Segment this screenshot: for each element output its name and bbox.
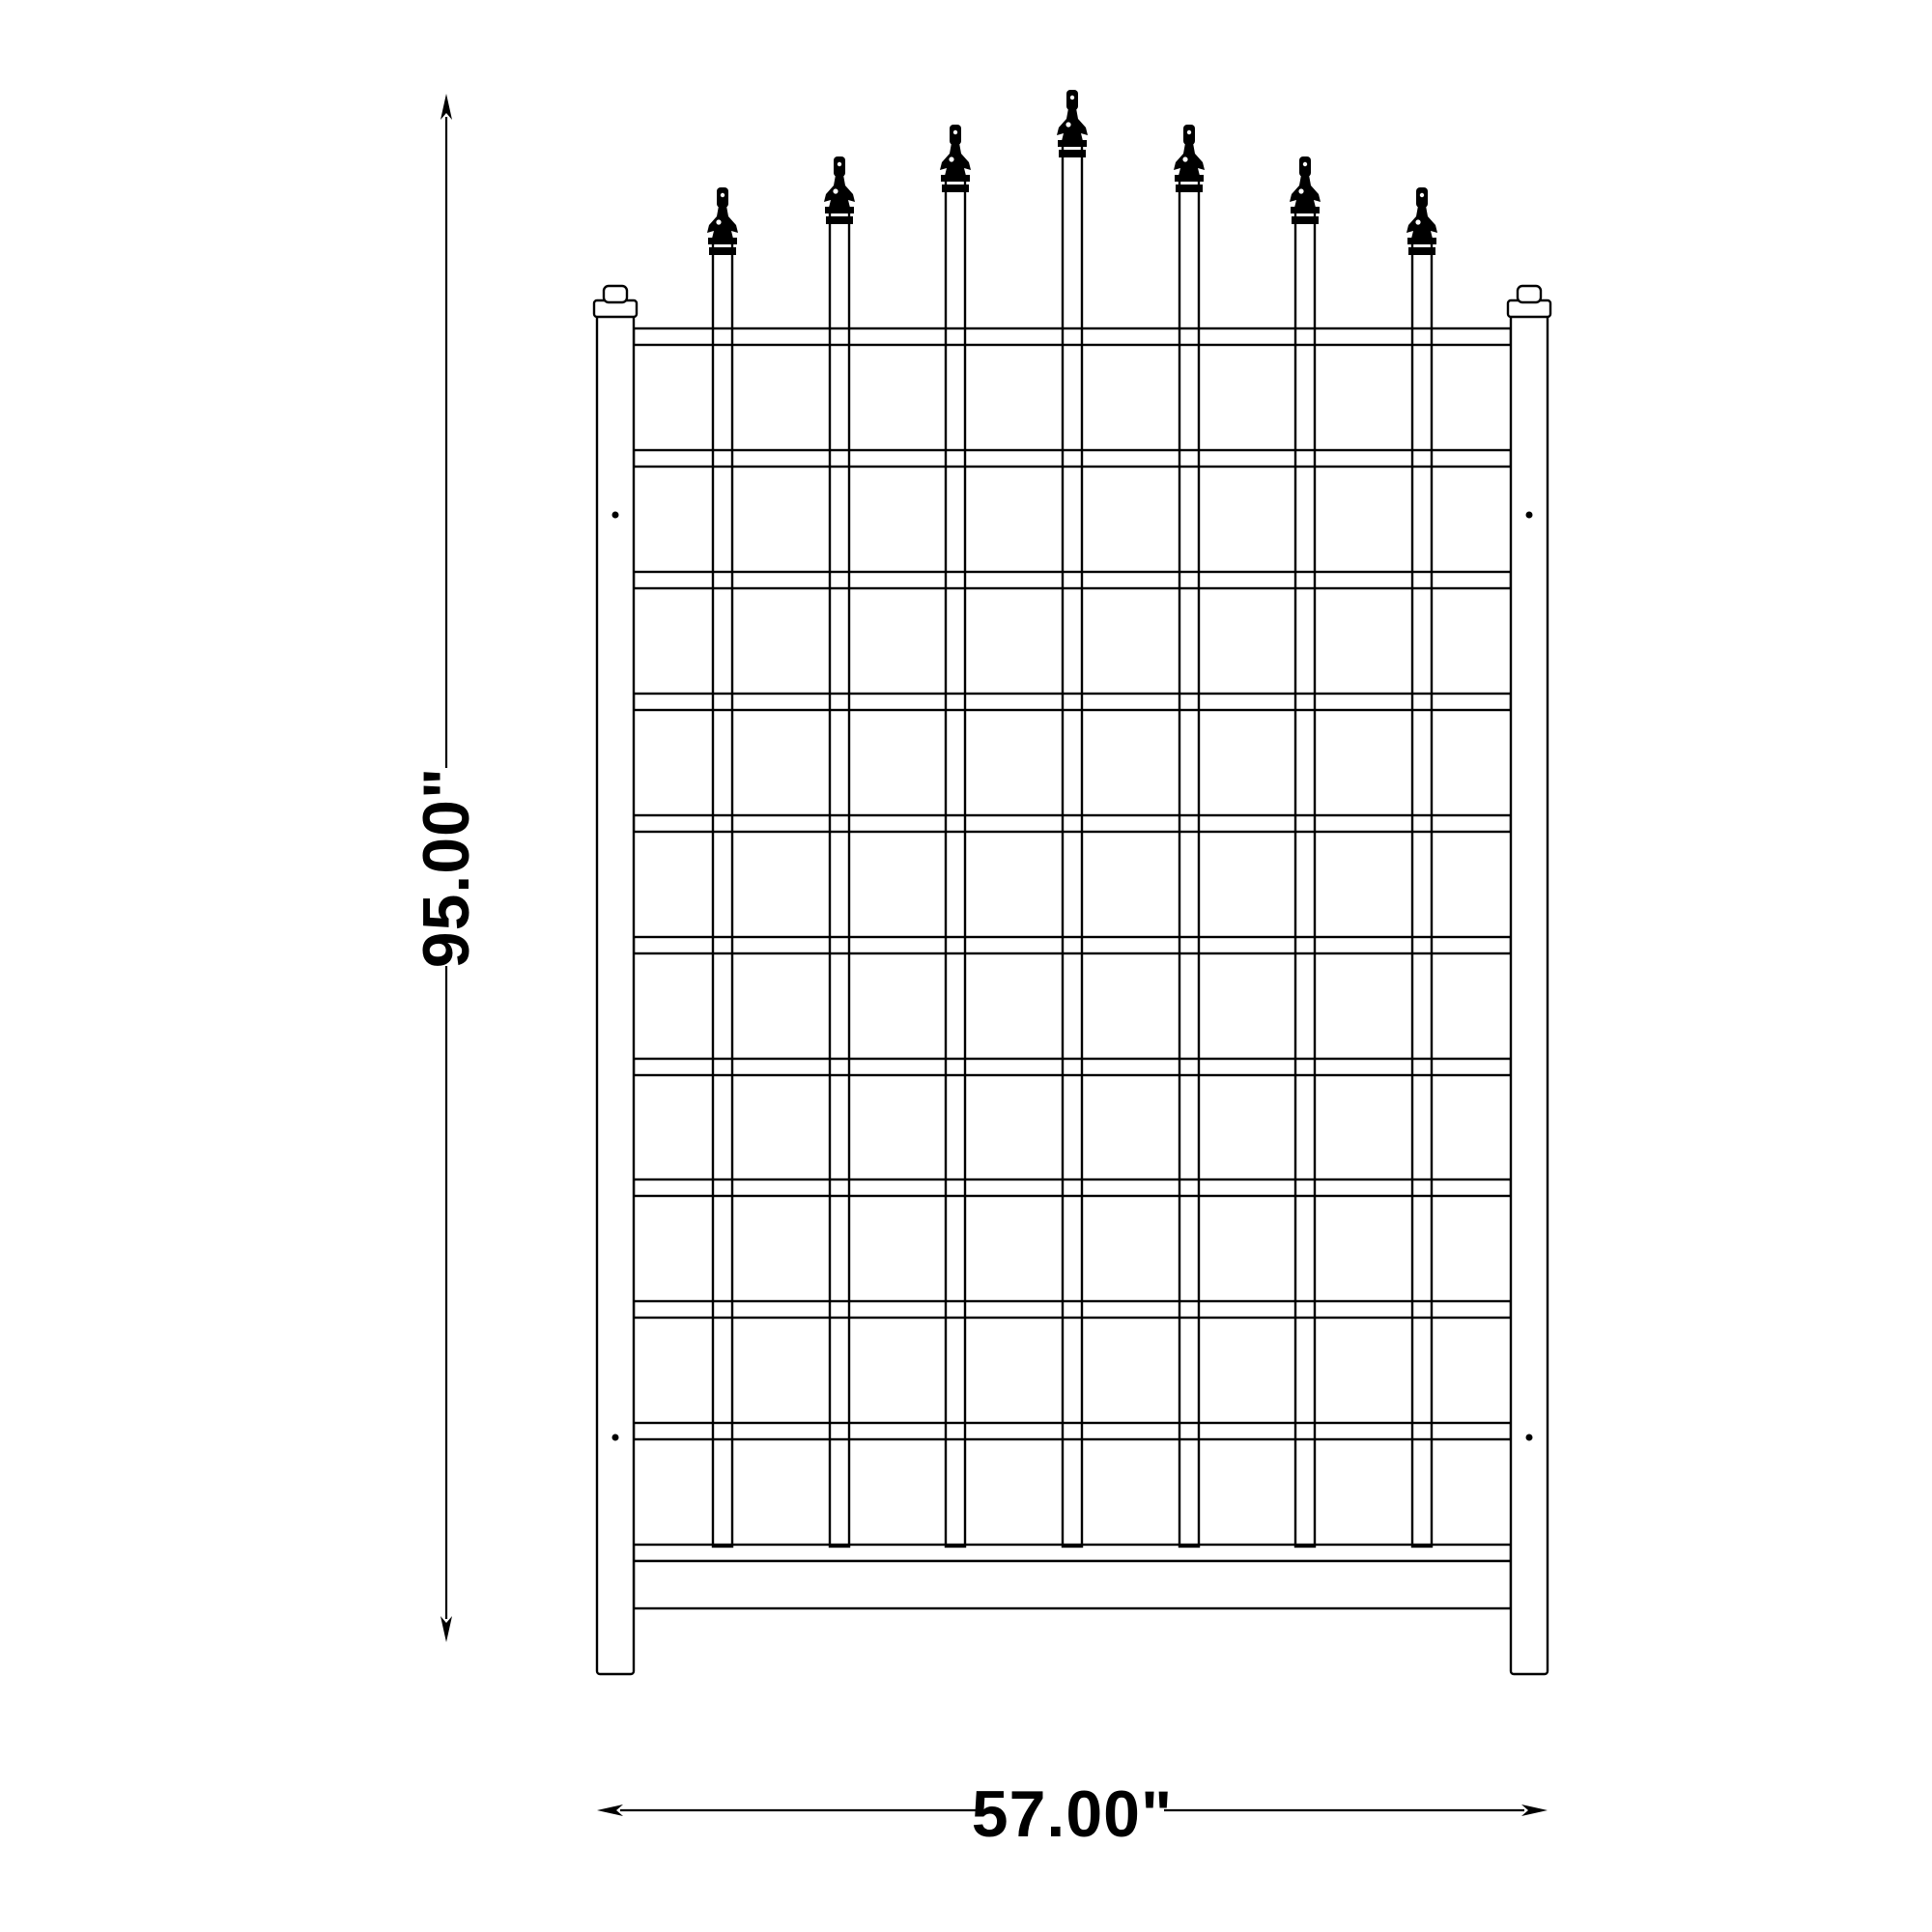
finial-spear-body (940, 143, 971, 176)
finial-collar-upper (1058, 140, 1087, 147)
finial-body-highlight (1415, 219, 1420, 224)
finial-knob (1299, 156, 1311, 177)
vertical-bar (1063, 143, 1082, 1547)
finial-spear-body (707, 206, 738, 239)
vertical-bar (713, 241, 732, 1547)
bottom-rail (634, 1561, 1511, 1608)
bars-group (713, 143, 1432, 1547)
posts-group (594, 286, 1550, 1674)
drawing-canvas: 95.00" 57.00" (0, 0, 1932, 1932)
width-dim-arrow-right (1521, 1804, 1548, 1816)
finial-knob-highlight (721, 193, 724, 197)
finial-knob (717, 187, 728, 208)
trellis-drawing: 95.00" 57.00" (0, 0, 1932, 1932)
right-post-screw-hole (1526, 512, 1533, 519)
finial-knob-highlight (1187, 130, 1191, 134)
grid-rail (634, 1301, 1511, 1318)
left-post-cap-knob (604, 286, 627, 302)
finial-knob-highlight (1303, 162, 1307, 166)
finial-collar-upper (1407, 238, 1436, 244)
finial (940, 125, 971, 192)
grid-rail (634, 937, 1511, 953)
finial-spear-body (824, 175, 855, 208)
finial-collar-upper (1175, 175, 1204, 182)
finial (707, 187, 738, 255)
finial-knob (1416, 187, 1428, 208)
finial-collar-upper (825, 207, 854, 213)
finial-spear-body (1057, 108, 1088, 141)
finial-body-highlight (1065, 122, 1070, 127)
finial-knob (950, 125, 961, 145)
finials-group (707, 90, 1437, 255)
finial-collar-lower (826, 216, 853, 224)
finial-body-highlight (716, 219, 721, 224)
finial-knob (1183, 125, 1195, 145)
grid-rail (634, 1059, 1511, 1075)
grid-rail (634, 694, 1511, 710)
left-post (597, 315, 634, 1674)
finial-body-highlight (1298, 188, 1303, 193)
finial-collar-upper (1291, 207, 1320, 213)
finial-collar-upper (708, 238, 737, 244)
finial-knob-highlight (838, 162, 841, 166)
grid-rail (634, 572, 1511, 588)
right-post-cap-knob (1518, 286, 1541, 302)
left-post-screw-hole (612, 1435, 619, 1441)
finial-body-highlight (833, 188, 838, 193)
finial-spear-body (1406, 206, 1437, 239)
finial-collar-lower (709, 247, 736, 255)
finial-collar-upper (941, 175, 970, 182)
rails-group (634, 328, 1511, 1608)
finial-collar-lower (1176, 185, 1203, 192)
right-post-screw-hole (1526, 1435, 1533, 1441)
finial-knob-highlight (1420, 193, 1424, 197)
height-dimension-label: 95.00" (410, 767, 483, 968)
grid-rail (634, 1179, 1511, 1196)
vertical-bar (830, 210, 849, 1547)
finial-collar-lower (942, 185, 969, 192)
grid-rail (634, 450, 1511, 467)
finial-knob-highlight (1070, 96, 1074, 99)
finial-knob (834, 156, 845, 177)
finial-collar-lower (1292, 216, 1319, 224)
dimension-vertical: 95.00" (410, 94, 483, 1642)
vertical-bar (1412, 241, 1432, 1547)
right-post (1511, 315, 1548, 1674)
finial-spear-body (1174, 143, 1205, 176)
finial-knob (1066, 90, 1078, 110)
dimension-horizontal: 57.00" (597, 1777, 1548, 1851)
finial-knob-highlight (953, 130, 957, 134)
height-dim-arrow-up (440, 94, 452, 120)
grid-rail (634, 1423, 1511, 1439)
grid-rail (634, 815, 1511, 832)
finial-collar-lower (1408, 247, 1435, 255)
vertical-bar (1295, 210, 1315, 1547)
vertical-bar (946, 178, 965, 1547)
finial-body-highlight (949, 156, 953, 161)
left-post-screw-hole (612, 512, 619, 519)
finial-spear-body (1290, 175, 1321, 208)
finial-body-highlight (1182, 156, 1187, 161)
finial-collar-lower (1059, 150, 1086, 157)
height-dim-arrow-down (440, 1616, 452, 1642)
width-dim-arrow-left (597, 1804, 623, 1816)
grid-rail (634, 328, 1511, 345)
vertical-bar (1179, 178, 1199, 1547)
width-dimension-label: 57.00" (972, 1777, 1173, 1851)
finial (824, 156, 855, 224)
